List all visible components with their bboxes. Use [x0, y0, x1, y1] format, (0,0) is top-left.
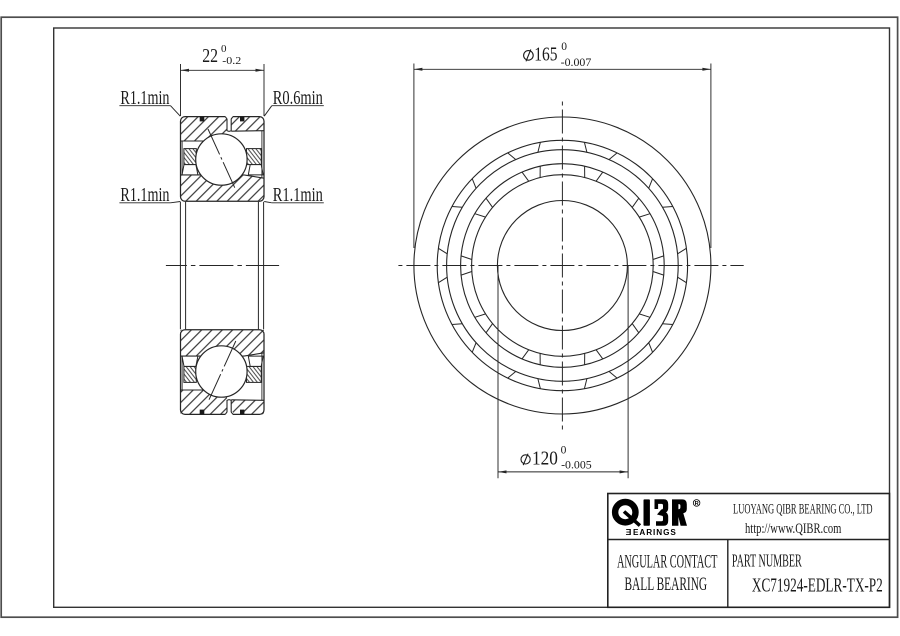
svg-text:http://www.QIBR.com: http://www.QIBR.com: [745, 521, 842, 537]
svg-text:22: 22: [202, 45, 218, 67]
svg-text:E: E: [625, 527, 631, 537]
svg-text:EARINGS: EARINGS: [633, 527, 677, 537]
svg-text:R: R: [695, 501, 699, 507]
svg-text:-0.2: -0.2: [222, 55, 241, 67]
svg-text:ANGULAR CONTACT: ANGULAR CONTACT: [617, 551, 718, 572]
svg-text:165: 165: [534, 44, 557, 66]
svg-text:-0.007: -0.007: [561, 57, 592, 69]
svg-text:-0.005: -0.005: [561, 460, 592, 472]
svg-text:0: 0: [561, 444, 567, 456]
svg-text:BALL BEARING: BALL BEARING: [624, 574, 707, 595]
svg-text:LUOYANG QIBR BEARING CO., LTD: LUOYANG QIBR BEARING CO., LTD: [733, 501, 873, 517]
svg-text:120: 120: [532, 447, 558, 469]
svg-text:PART NUMBER: PART NUMBER: [732, 551, 802, 571]
svg-text:0: 0: [561, 41, 567, 53]
svg-text:XC71924-EDLR-TX-P2: XC71924-EDLR-TX-P2: [752, 575, 883, 597]
svg-text:0: 0: [221, 43, 227, 55]
